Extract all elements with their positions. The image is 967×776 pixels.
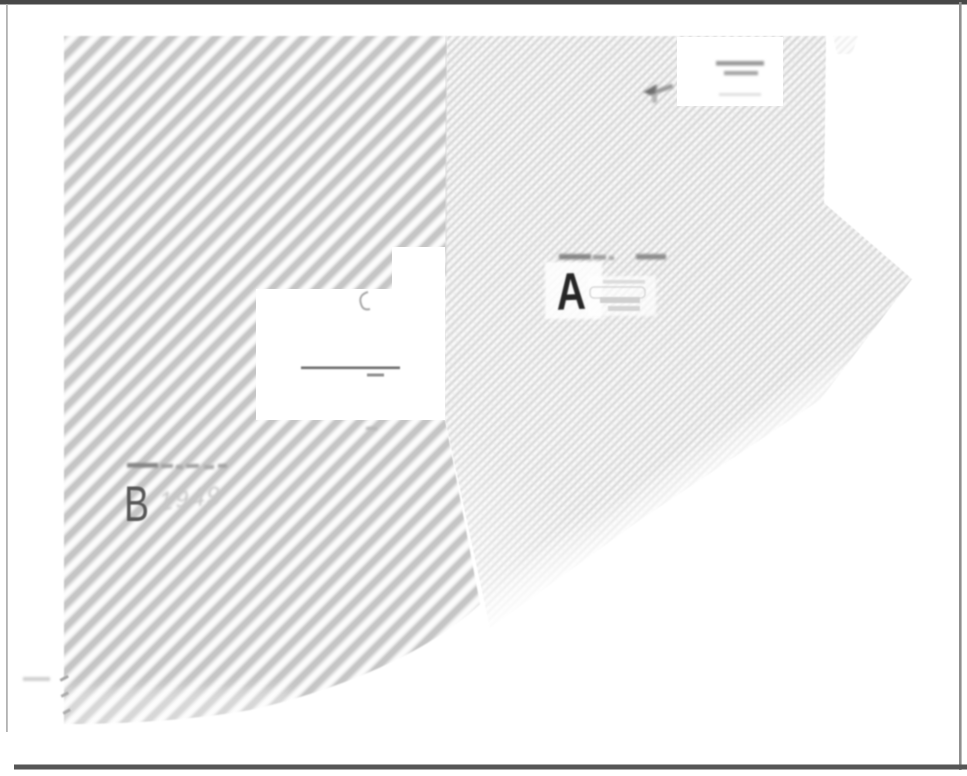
svg-text:A: A <box>555 262 586 321</box>
svg-text:B: B <box>124 477 149 532</box>
